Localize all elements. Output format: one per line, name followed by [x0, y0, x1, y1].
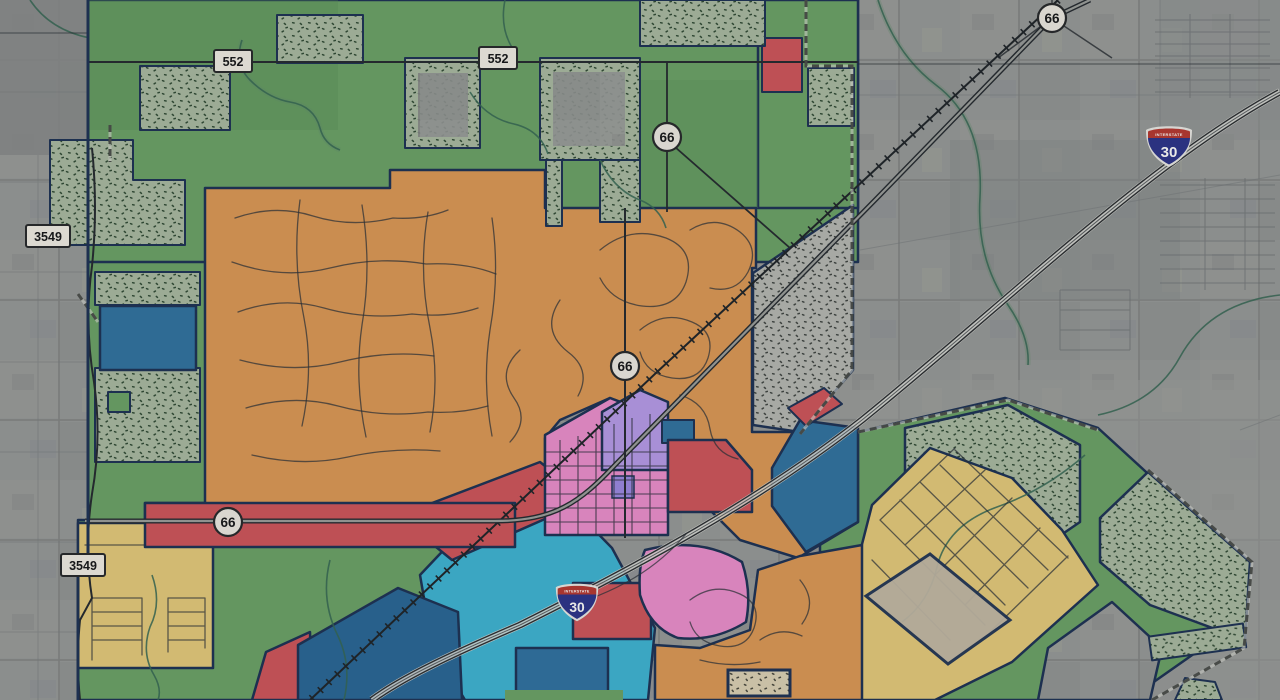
- aerial-dark-topleft: [0, 0, 100, 155]
- shield-label: 3549: [69, 559, 97, 573]
- shield-fm-3549: 3549: [26, 225, 70, 247]
- map-viewport: 6666666655255235493549INTERSTATE30INTERS…: [0, 0, 1280, 700]
- shield-label: 552: [488, 52, 509, 66]
- aerial-enclave: [553, 72, 625, 146]
- zone-steel-blue-west: [100, 306, 196, 370]
- floodplain-speckle: [95, 368, 200, 462]
- floodplain-speckle: [640, 0, 765, 46]
- zone-deep-purple: [612, 476, 634, 498]
- shield-fm-3549: 3549: [61, 554, 105, 576]
- floodplain-speckle: [277, 15, 363, 63]
- map-canvas[interactable]: 6666666655255235493549INTERSTATE30INTERS…: [0, 0, 1280, 700]
- shield-state-66: 66: [653, 123, 681, 151]
- shield-label: 66: [1044, 11, 1060, 26]
- shield-label: 66: [617, 359, 633, 374]
- shield-state-66: 66: [214, 508, 242, 536]
- zone-red-north: [762, 38, 802, 92]
- shield-state-66: 66: [611, 352, 639, 380]
- shield-label: 66: [659, 130, 675, 145]
- zone-red-sh66-corridor: [145, 503, 515, 547]
- interstate-banner: INTERSTATE: [564, 590, 590, 594]
- floodplain-speckle: [600, 160, 640, 222]
- shield-label: 30: [569, 600, 585, 615]
- floodplain-speckle: [140, 66, 230, 130]
- shield-fm-552: 552: [479, 47, 517, 69]
- aerial-tone: [950, 140, 1180, 300]
- green-strip-bottom: [505, 690, 623, 700]
- floodplain-speckle: [95, 272, 200, 305]
- shield-label: 30: [1161, 144, 1178, 161]
- shield-fm-552: 552: [214, 50, 252, 72]
- shield-label: 552: [223, 55, 244, 69]
- zone-pink-circle: [640, 545, 749, 639]
- shield-state-66: 66: [1038, 4, 1066, 32]
- floodplain-speckle: [546, 160, 562, 226]
- aerial-tone: [1160, 0, 1280, 140]
- interstate-banner: INTERSTATE: [1155, 132, 1183, 137]
- floodplain-speckle: [808, 68, 854, 126]
- aerial-enclave: [418, 73, 468, 137]
- shield-label: 66: [220, 515, 236, 530]
- green-inlier: [108, 392, 130, 412]
- speckle-tan-rect: [728, 670, 790, 696]
- shield-label: 3549: [34, 230, 62, 244]
